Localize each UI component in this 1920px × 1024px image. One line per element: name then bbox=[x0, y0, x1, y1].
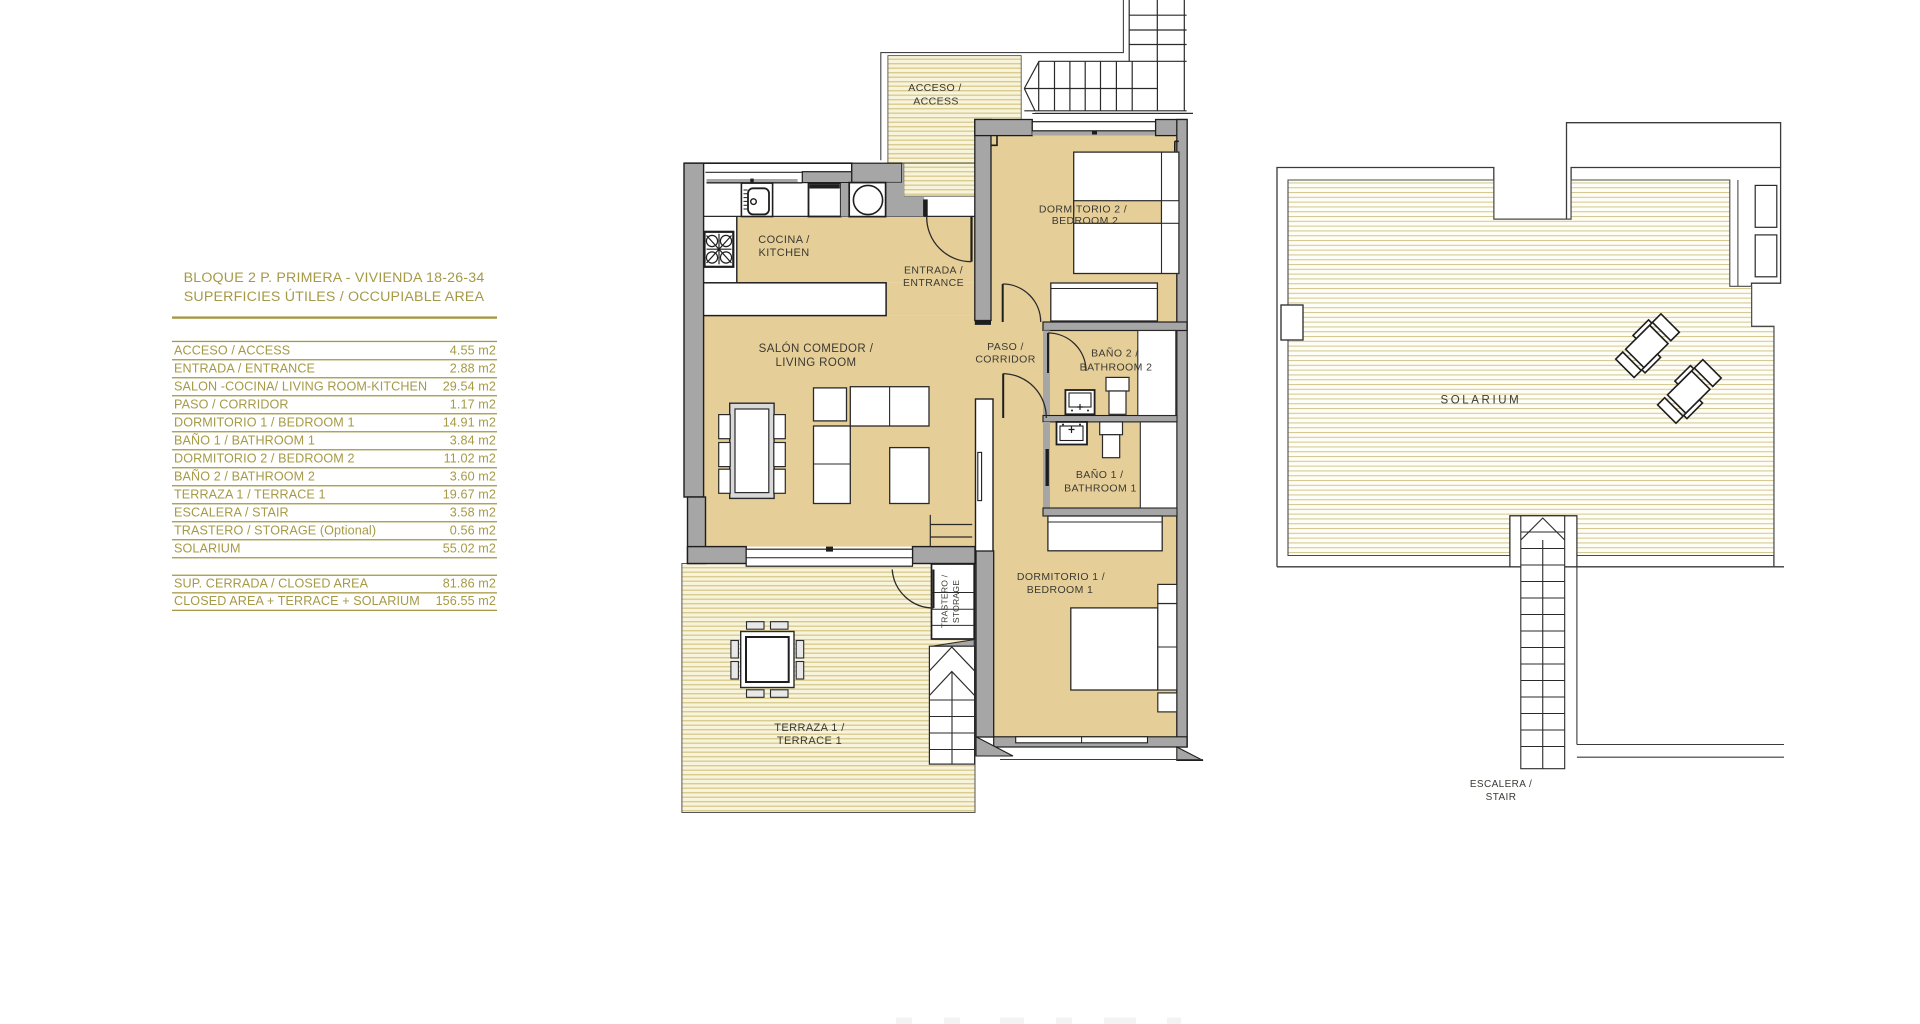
svg-text:ENTRADA / ENTRANCE: ENTRADA / ENTRANCE bbox=[174, 362, 315, 376]
svg-text:55.02 m2: 55.02 m2 bbox=[443, 542, 496, 556]
svg-text:ESCALERA / STAIR: ESCALERA / STAIR bbox=[174, 506, 289, 520]
svg-text:TERRAZA 1 / TERRACE 1: TERRAZA 1 / TERRACE 1 bbox=[174, 488, 326, 502]
svg-text:ACCESS: ACCESS bbox=[913, 96, 959, 108]
svg-text:BAÑO 2 /: BAÑO 2 / bbox=[1091, 347, 1139, 360]
svg-text:SUPERFICIES ÚTILES / OCCUPIABL: SUPERFICIES ÚTILES / OCCUPIABLE AREA bbox=[184, 288, 485, 305]
svg-text:STORAGE: STORAGE bbox=[951, 580, 961, 623]
svg-text:19.67 m2: 19.67 m2 bbox=[443, 488, 496, 502]
svg-text:29.54 m2: 29.54 m2 bbox=[443, 380, 496, 394]
svg-text:PASO /: PASO / bbox=[987, 341, 1024, 353]
svg-text:4.55 m2: 4.55 m2 bbox=[450, 344, 496, 358]
svg-text:2.88 m2: 2.88 m2 bbox=[450, 362, 496, 376]
svg-text:3.84 m2: 3.84 m2 bbox=[450, 434, 496, 448]
svg-text:BEDROOM 1: BEDROOM 1 bbox=[1027, 584, 1094, 596]
svg-text:1.17 m2: 1.17 m2 bbox=[450, 398, 496, 412]
svg-text:DORMITORIO 1 /: DORMITORIO 1 / bbox=[1017, 571, 1105, 583]
svg-text:LIVING ROOM: LIVING ROOM bbox=[775, 357, 856, 369]
svg-text:DORMITORIO 2 / BEDROOM 2: DORMITORIO 2 / BEDROOM 2 bbox=[174, 452, 355, 466]
svg-text:STAIR: STAIR bbox=[1486, 792, 1517, 803]
svg-text:ENTRADA /: ENTRADA / bbox=[904, 265, 963, 277]
svg-text:81.86 m2: 81.86 m2 bbox=[443, 577, 496, 591]
svg-text:SALÓN COMEDOR /: SALÓN COMEDOR / bbox=[759, 342, 874, 355]
svg-text:DORMITORIO 2 /: DORMITORIO 2 / bbox=[1039, 204, 1127, 216]
svg-text:BAÑO 1 /: BAÑO 1 / bbox=[1076, 468, 1124, 481]
svg-text:PASO / CORRIDOR: PASO / CORRIDOR bbox=[174, 398, 289, 412]
svg-text:ACCESO /: ACCESO / bbox=[908, 82, 961, 94]
svg-text:ACCESO / ACCESS: ACCESO / ACCESS bbox=[174, 344, 290, 358]
svg-text:BAÑO 2 / BATHROOM 2: BAÑO 2 / BATHROOM 2 bbox=[174, 470, 315, 484]
svg-text:156.55 m2: 156.55 m2 bbox=[436, 594, 496, 608]
svg-text:BATHROOM 1: BATHROOM 1 bbox=[1064, 483, 1137, 495]
svg-text:SOLARIUM: SOLARIUM bbox=[1440, 395, 1521, 407]
svg-text:CORRIDOR: CORRIDOR bbox=[975, 354, 1035, 366]
svg-text:TRASTERO / STORAGE (Optional): TRASTERO / STORAGE (Optional) bbox=[174, 524, 376, 538]
svg-text:BAÑO 1 / BATHROOM 1: BAÑO 1 / BATHROOM 1 bbox=[174, 434, 315, 448]
svg-text:0.56 m2: 0.56 m2 bbox=[450, 524, 496, 538]
svg-text:KITCHEN: KITCHEN bbox=[758, 247, 809, 259]
svg-text:CLOSED AREA + TERRACE + SOLARI: CLOSED AREA + TERRACE + SOLARIUM bbox=[174, 594, 420, 608]
svg-text:ESCALERA /: ESCALERA / bbox=[1470, 779, 1532, 790]
svg-text:SUP. CERRADA / CLOSED AREA: SUP. CERRADA / CLOSED AREA bbox=[174, 577, 369, 591]
svg-text:DORMITORIO 1 / BEDROOM 1: DORMITORIO 1 / BEDROOM 1 bbox=[174, 416, 355, 430]
svg-text:TERRAZA 1 /: TERRAZA 1 / bbox=[774, 722, 845, 734]
svg-text:BATHROOM 2: BATHROOM 2 bbox=[1080, 362, 1153, 374]
svg-text:3.58 m2: 3.58 m2 bbox=[450, 506, 496, 520]
svg-text:11.02 m2: 11.02 m2 bbox=[444, 452, 496, 466]
svg-text:BLOQUE 2 P. PRIMERA - VIVIEND: BLOQUE 2 P. PRIMERA - VIVIENDA 18-26-34 bbox=[184, 270, 485, 286]
svg-text:TERRACE 1: TERRACE 1 bbox=[777, 735, 842, 747]
svg-text:TRASTERO /: TRASTERO / bbox=[940, 574, 950, 628]
svg-text:COCINA /: COCINA / bbox=[758, 234, 810, 246]
svg-text:3.60 m2: 3.60 m2 bbox=[450, 470, 496, 484]
svg-text:SALON -COCINA/ LIVING ROOM-KIT: SALON -COCINA/ LIVING ROOM-KITCHEN bbox=[174, 380, 427, 394]
svg-text:ENTRANCE: ENTRANCE bbox=[903, 277, 964, 289]
svg-text:14.91 m2: 14.91 m2 bbox=[443, 416, 496, 430]
svg-text:SOLARIUM: SOLARIUM bbox=[174, 542, 241, 556]
svg-text:BEDROOM 2: BEDROOM 2 bbox=[1052, 215, 1119, 227]
